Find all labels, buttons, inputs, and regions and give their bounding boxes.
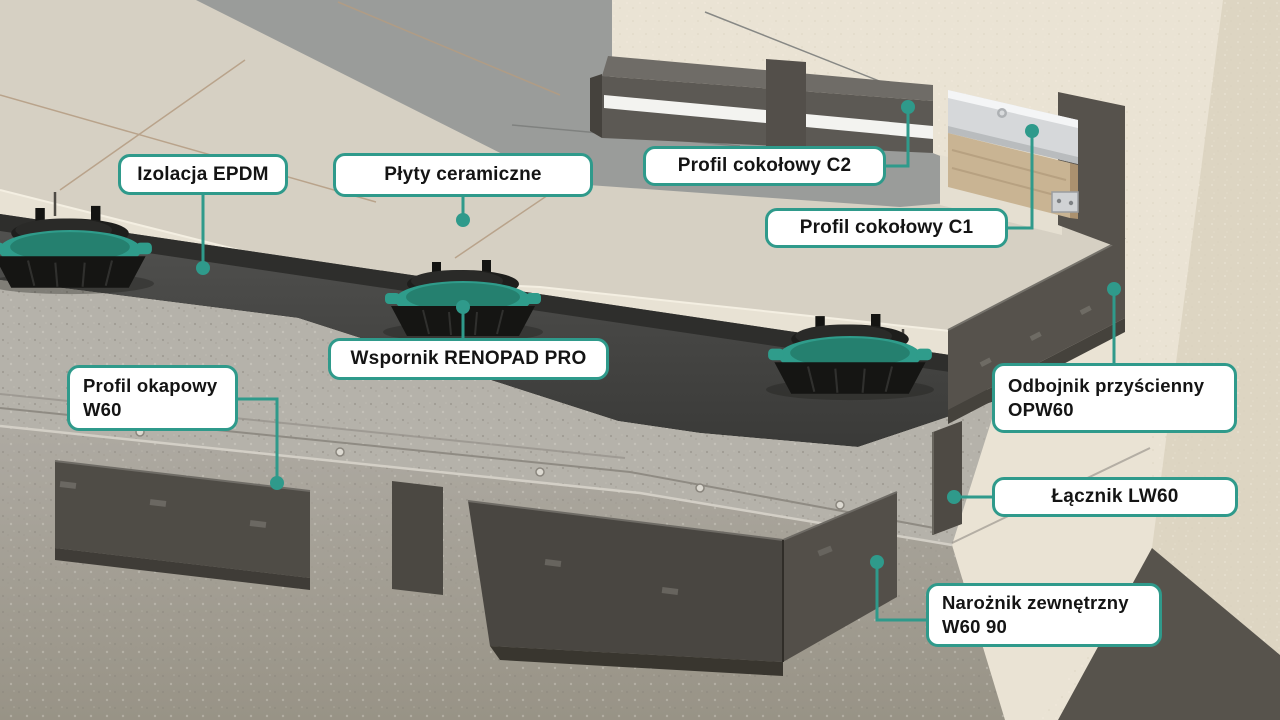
label-text: Profil okapowy W60 [83,374,217,423]
label-profil-cokolowy-c2: Profil cokołowy C2 [643,146,886,186]
label-naroznik-zewnetrzny-w60-90: Narożnik zewnętrzny W60 90 [926,583,1162,647]
label-text: Profil cokołowy C2 [678,153,852,178]
label-profil-cokolowy-c1: Profil cokołowy C1 [765,208,1008,248]
label-text: Izolacja EPDM [137,162,268,187]
label-text: Profil cokołowy C1 [800,215,974,240]
connector-dot [456,300,470,314]
diagram-canvas: Izolacja EPDM Płyty ceramiczne Profil co… [0,0,1280,720]
label-izolacja-epdm: Izolacja EPDM [118,154,288,195]
fixing-clip [1052,192,1078,212]
connector-dot [196,261,210,275]
label-text: Płyty ceramiczne [384,162,541,187]
drip-profile-w60-segment [392,481,443,595]
label-plyty-ceramiczne: Płyty ceramiczne [333,153,593,197]
label-text: Łącznik LW60 [1052,484,1179,509]
profile-c2-end [590,74,602,138]
connector-dot [947,490,961,504]
connector-dot [1025,124,1039,138]
label-wspornik-renopad-pro: Wspornik RENOPAD PRO [328,338,609,380]
profile-c2-coupler [766,59,806,155]
connector-lw60-part [933,421,962,535]
connector-dot [270,476,284,490]
label-text: Odbojnik przyścienny OPW60 [1008,374,1204,423]
connector-dot [1107,282,1121,296]
label-lacznik-lw60: Łącznik LW60 [992,477,1238,517]
connector-dot [870,555,884,569]
label-odbojnik-przyscienny-opw60: Odbojnik przyścienny OPW60 [992,363,1237,433]
label-profil-okapowy-w60: Profil okapowy W60 [67,365,238,431]
label-text: Narożnik zewnętrzny W60 90 [942,591,1129,640]
connector-dot [901,100,915,114]
label-text: Wspornik RENOPAD PRO [351,346,587,371]
connector-dot [456,213,470,227]
